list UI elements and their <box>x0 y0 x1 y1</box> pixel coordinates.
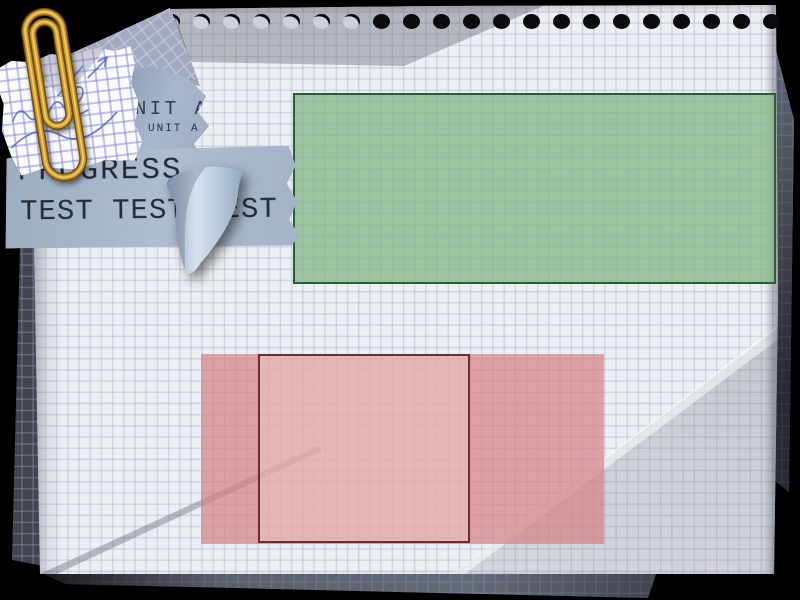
binder-hole <box>613 14 630 29</box>
binder-hole <box>373 14 390 29</box>
pink-inner-outline-box <box>258 354 470 543</box>
binder-hole <box>583 14 600 29</box>
binder-hole <box>673 14 690 29</box>
binder-hole <box>763 14 780 29</box>
binder-hole <box>463 14 480 29</box>
binder-hole <box>403 14 420 29</box>
torn-paper-curl-icon <box>148 158 264 288</box>
collage-canvas: UNIT A UNIT A PROGRESS TEST TEST TEST <box>0 0 800 600</box>
unit-a-label-small: UNIT A <box>148 123 200 135</box>
binder-hole <box>643 14 660 29</box>
under-sheet-bottom-edge <box>36 570 662 600</box>
binder-hole <box>493 14 510 29</box>
binder-hole <box>223 14 240 29</box>
paperclip-icon <box>4 0 114 196</box>
green-highlight-box <box>293 93 776 284</box>
binder-hole <box>433 14 450 29</box>
binder-hole <box>283 14 300 29</box>
binder-hole <box>733 14 750 29</box>
binder-hole <box>703 14 720 29</box>
binder-hole <box>313 14 330 29</box>
binder-hole <box>193 14 210 29</box>
binder-hole <box>253 14 270 29</box>
binder-hole <box>523 14 540 29</box>
binder-hole <box>343 14 360 29</box>
binder-hole <box>553 14 570 29</box>
